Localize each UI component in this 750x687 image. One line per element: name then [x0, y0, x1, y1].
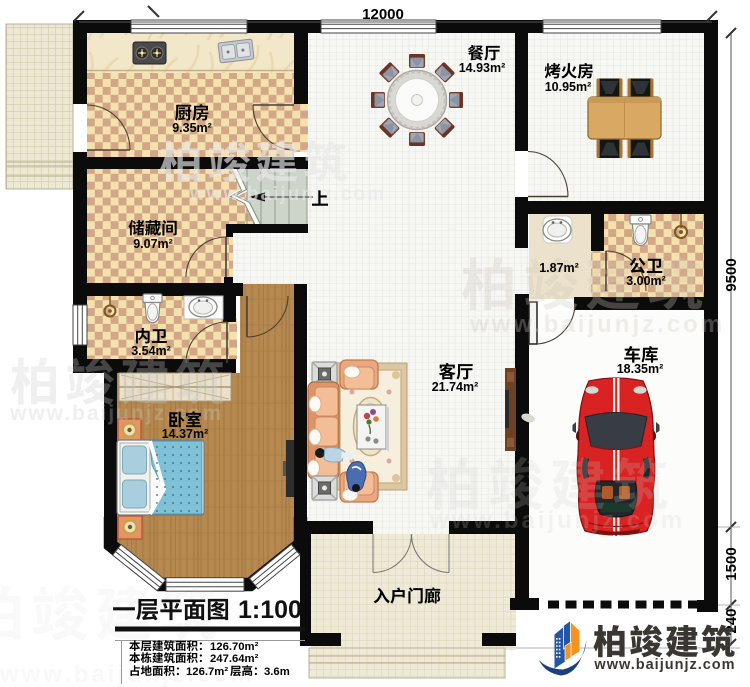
- svg-text:126.7m²: 126.7m²: [186, 666, 228, 678]
- svg-text:12000: 12000: [362, 6, 404, 23]
- svg-text:18.35m²: 18.35m²: [617, 362, 664, 376]
- svg-text:1500: 1500: [723, 547, 740, 580]
- svg-text:9500: 9500: [723, 258, 740, 291]
- svg-text:www.baijunjz.com: www.baijunjz.com: [469, 311, 725, 338]
- svg-text:21.74m²: 21.74m²: [432, 380, 479, 394]
- svg-text:www.baijunjz.com: www.baijunjz.com: [593, 657, 735, 673]
- svg-text:9.35m²: 9.35m²: [172, 121, 212, 135]
- svg-text:247.64m²: 247.64m²: [210, 653, 259, 665]
- svg-text:1:100: 1:100: [238, 596, 302, 624]
- svg-text:www.baijunjz.com: www.baijunjz.com: [429, 507, 685, 534]
- svg-text:3.6m: 3.6m: [264, 666, 290, 678]
- svg-text:www.baijunjz.com: www.baijunjz.com: [189, 184, 386, 205]
- svg-text:14.93m²: 14.93m²: [459, 61, 506, 75]
- svg-text:9.07m²: 9.07m²: [133, 237, 173, 251]
- svg-text:3.54m²: 3.54m²: [131, 344, 171, 358]
- svg-text:3.00m²: 3.00m²: [626, 274, 666, 288]
- svg-text:10.95m²: 10.95m²: [545, 80, 592, 94]
- svg-text:1.87m²: 1.87m²: [539, 261, 579, 275]
- svg-text:14.37m²: 14.37m²: [162, 427, 209, 441]
- svg-text:126.70m²: 126.70m²: [210, 641, 259, 653]
